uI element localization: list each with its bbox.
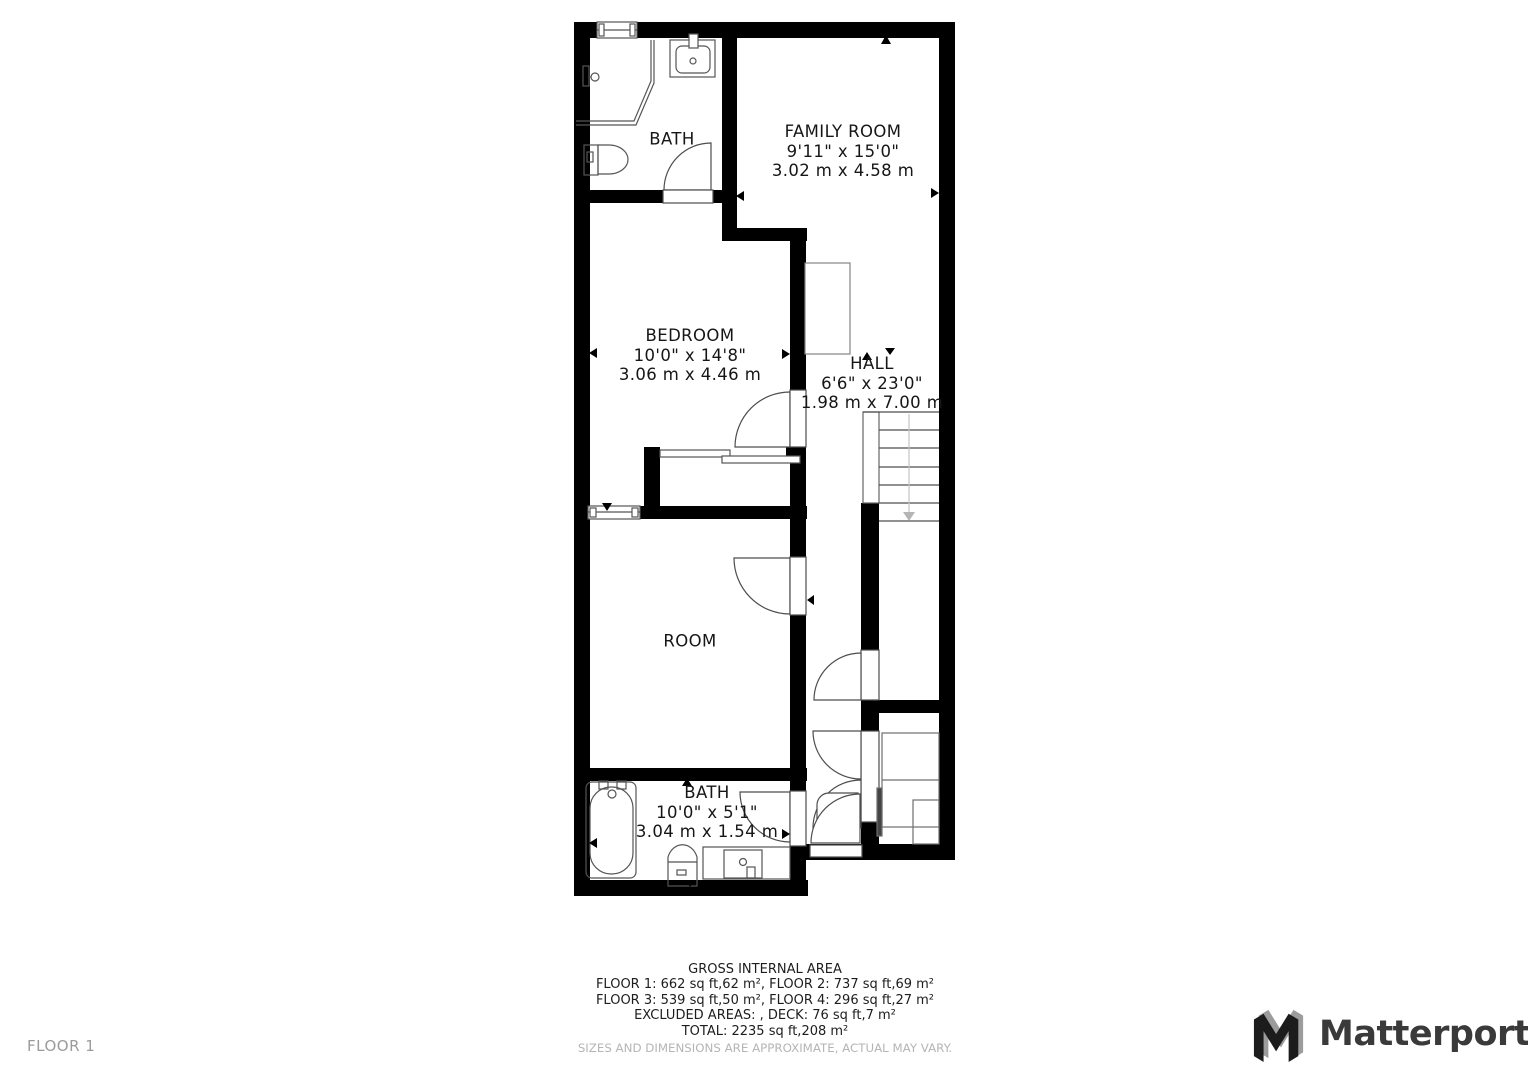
room-name: FAMILY ROOM: [772, 122, 914, 142]
room-label-family-room: FAMILY ROOM 9'11" x 15'0" 3.02 m x 4.58 …: [772, 122, 914, 181]
floorplan-page: BATH FAMILY ROOM 9'11" x 15'0" 3.02 m x …: [0, 0, 1528, 1080]
room-dims-ft: 6'6" x 23'0": [801, 373, 943, 393]
wall-corridor-right-a: [861, 503, 879, 650]
sliding-door-panel: [660, 450, 730, 457]
room-label-bath-upper: BATH: [649, 129, 694, 149]
matterport-m-icon: [1252, 1006, 1306, 1062]
area-summary-line: EXCLUDED AREAS: , DECK: 76 sq ft,7 m²: [578, 1008, 952, 1023]
marker-left-familyroom: [736, 191, 744, 201]
utility-door-jamb: [877, 788, 882, 836]
doors: [663, 143, 879, 857]
sink-faucet-icon: [689, 34, 698, 48]
door-arc-corridor-a: [814, 653, 861, 700]
toilet-bowl-icon: [668, 845, 697, 886]
room-name: ROOM: [663, 631, 716, 651]
area-summary-line: FLOOR 3: 539 sq ft,50 m², FLOOR 4: 296 s…: [578, 993, 952, 1008]
wall-room-right: [790, 615, 806, 791]
wall-laundry-top: [879, 700, 940, 713]
room-dims-ft: 9'11" x 15'0": [772, 141, 914, 161]
area-summary-line: FLOOR 1: 662 sq ft,62 m², FLOOR 2: 737 s…: [578, 977, 952, 992]
sink-bowl-icon: [676, 46, 710, 73]
room-dims-ft: 10'0" x 5'1": [636, 802, 778, 822]
wall-exterior-right: [939, 22, 955, 860]
wall-corridor-right-c: [861, 822, 879, 846]
area-disclaimer: SIZES AND DIMENSIONS ARE APPROXIMATE, AC…: [578, 1041, 952, 1056]
door-arc-bath-upper: [664, 143, 711, 190]
room-dims-m: 3.04 m x 1.54 m: [636, 822, 778, 842]
room-name: BATH: [649, 129, 694, 149]
window-cap: [630, 24, 635, 36]
wall-familyroom-left: [722, 22, 737, 241]
marker-left-corridor: [807, 595, 814, 605]
door-leaf-bath-lower: [790, 791, 806, 846]
vanity-drain-icon: [740, 859, 747, 866]
hall-cabinet: [805, 263, 850, 354]
floorplan-drawing: [0, 0, 1528, 1080]
window-cap: [632, 508, 638, 517]
floor-number-label: FLOOR 1: [27, 1037, 95, 1055]
room-dims-m: 3.06 m x 4.46 m: [619, 365, 761, 385]
room-label-hall: HALL 6'6" x 23'0" 1.98 m x 7.00 m: [801, 354, 943, 413]
room-label-bath-lower: BATH 10'0" x 5'1" 3.04 m x 1.54 m: [636, 783, 778, 842]
sliding-door-panel: [722, 456, 800, 463]
room-label-bedroom: BEDROOM 10'0" x 14'8" 3.06 m x 4.46 m: [619, 326, 761, 385]
door-opening-corridor-a: [861, 650, 879, 700]
wall-bath-upper-bottom-a: [574, 190, 663, 203]
bathtub-basin-icon: [590, 787, 633, 874]
room-label-room: ROOM: [663, 631, 716, 651]
closet-sliding-doors: [660, 450, 800, 463]
door-arc-corridor-b: [813, 731, 861, 779]
room-dims-m: 1.98 m x 7.00 m: [801, 393, 943, 413]
logo-front: [1254, 1014, 1298, 1062]
area-summary-total: TOTAL: 2235 sq ft,208 m²: [578, 1024, 952, 1039]
stairs-side-wall: [863, 412, 879, 503]
door-leaf-bath-upper: [663, 190, 713, 203]
wall-corridor-right-b: [861, 700, 879, 731]
room-dims-m: 3.02 m x 4.58 m: [772, 161, 914, 181]
matterport-logo: Matterport: [1252, 1006, 1528, 1062]
sink-drain-icon: [690, 58, 696, 64]
marker-left-bedroom: [589, 348, 597, 358]
room-name: HALL: [801, 354, 943, 374]
marker-right-familyroom: [931, 188, 939, 198]
stairs-down-arrow-icon: [903, 512, 915, 521]
room-dims-ft: 10'0" x 14'8": [619, 345, 761, 365]
toilet-button-icon: [677, 870, 686, 875]
wall-room-bath-divider: [574, 768, 807, 781]
area-summary: GROSS INTERNAL AREA FLOOR 1: 662 sq ft,6…: [578, 962, 952, 1056]
marker-right-bedroom: [782, 349, 790, 359]
vanity-sink-icon: [724, 850, 762, 878]
matterport-wordmark: Matterport: [1319, 1014, 1528, 1054]
door-leaf-room: [790, 557, 806, 615]
tub-drain-icon: [608, 790, 616, 798]
room-name: BEDROOM: [619, 326, 761, 346]
appliance-icon: [913, 800, 939, 844]
laundry-appliances: [877, 733, 939, 844]
door-opening-corridor-b: [861, 731, 879, 822]
window-cap: [599, 24, 604, 36]
wall-bath-lower-right: [790, 846, 806, 896]
shower-valve-icon: [591, 73, 599, 81]
area-summary-title: GROSS INTERNAL AREA: [578, 962, 952, 977]
window-cap: [590, 508, 596, 517]
door-leaf-corridor-d: [810, 845, 862, 857]
vanity-fixture-icon: [747, 867, 755, 878]
door-arc-room: [734, 558, 790, 614]
door-arc-bedroom: [735, 392, 790, 447]
room-name: BATH: [636, 783, 778, 803]
toilet-bowl-icon: [598, 145, 628, 174]
windows: [588, 22, 640, 519]
